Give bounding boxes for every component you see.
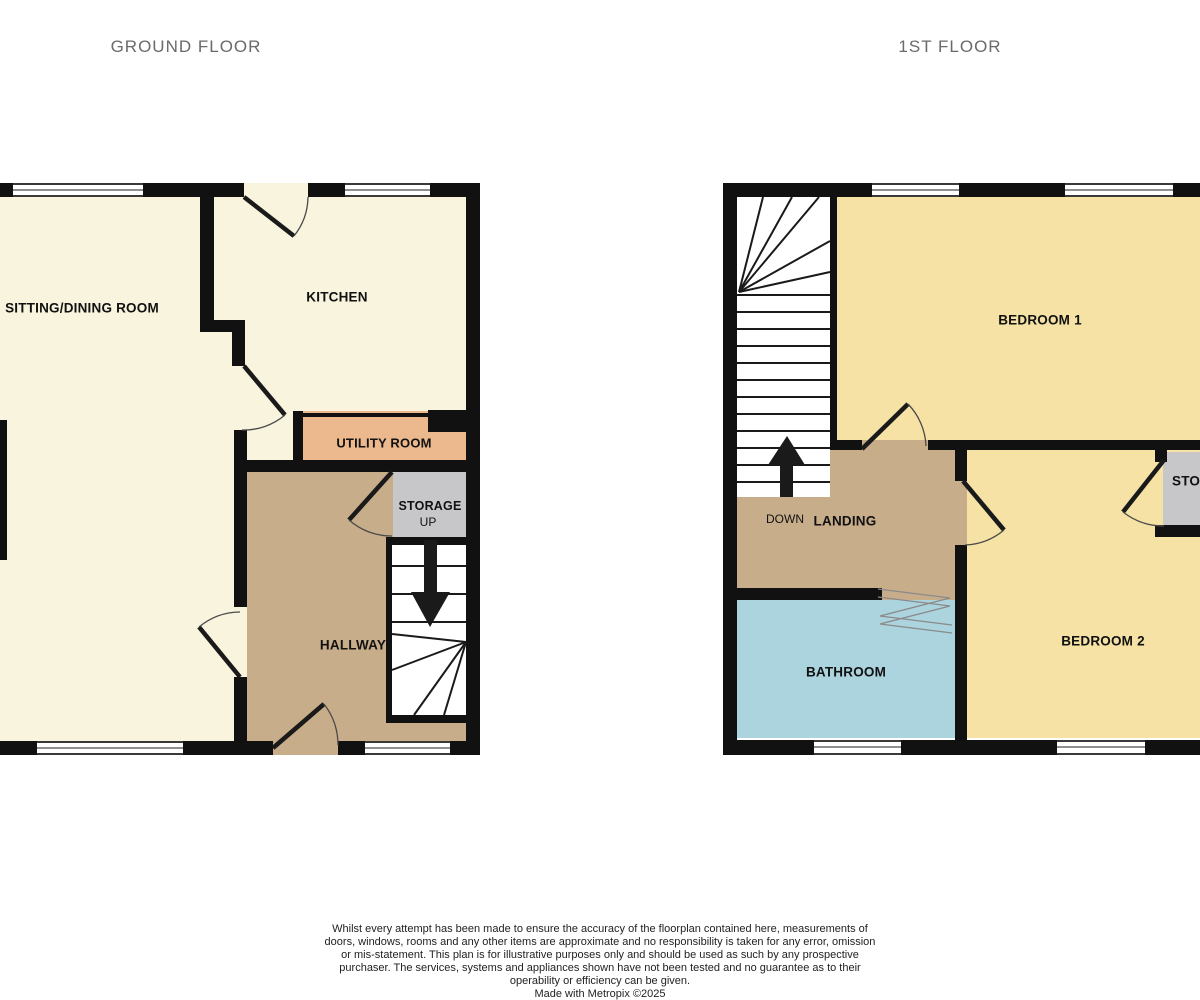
wall [0, 420, 7, 560]
wall [234, 460, 466, 472]
window [37, 741, 183, 755]
staircase-first [737, 197, 830, 497]
wall [232, 330, 245, 366]
wall [466, 183, 480, 755]
stairs-down-label: DOWN [766, 512, 804, 526]
room-label-bedroom1: BEDROOM 1 [998, 313, 1082, 328]
ground-floor-title: GROUND FLOOR [111, 37, 262, 57]
wall [837, 440, 862, 450]
room-label-bathroom: BATHROOM [806, 665, 886, 680]
wall [386, 545, 392, 723]
wall [428, 410, 466, 432]
room-label-kitchen: KITCHEN [306, 290, 367, 305]
credit-text: Made with Metropix ©2025 [322, 988, 878, 1000]
room-storage-first [1163, 452, 1200, 525]
window [872, 183, 959, 197]
wall [386, 715, 466, 723]
wall [234, 430, 247, 607]
door-opening [244, 183, 308, 197]
wall [955, 448, 967, 481]
room-label-storage-ground: STORAGE [399, 499, 462, 513]
room-label-utility: UTILITY ROOM [336, 436, 431, 451]
room-label-hallway: HALLWAY [320, 638, 386, 653]
window [365, 741, 450, 755]
footer: Whilst every attempt has been made to en… [322, 923, 878, 1000]
room-label-bedroom2: BEDROOM 2 [1061, 634, 1145, 649]
door-opening [862, 440, 928, 450]
first-floor-title: 1ST FLOOR [898, 37, 1001, 57]
room-label-sitting-dining: SITTING/DINING ROOM [5, 301, 159, 316]
wall [303, 413, 430, 417]
window [13, 183, 143, 197]
room-label-storage-first: STORAGE [1172, 474, 1200, 489]
front-door-opening [273, 741, 338, 755]
wall [830, 197, 837, 450]
window [1057, 740, 1145, 755]
stairs-up-label: UP [420, 515, 437, 529]
wall [386, 537, 466, 545]
wall [1155, 448, 1167, 462]
window [345, 183, 430, 197]
room-label-landing: LANDING [814, 514, 877, 529]
wall [1155, 525, 1200, 537]
wall [955, 545, 967, 740]
wall [234, 677, 247, 741]
window [1065, 183, 1173, 197]
wall [723, 588, 882, 600]
wall [200, 197, 214, 320]
floorplan-page: GROUND FLOOR 1ST FLOOR [0, 0, 1200, 1000]
wall [723, 183, 737, 755]
window [814, 740, 901, 755]
disclaimer-text: Whilst every attempt has been made to en… [322, 923, 878, 988]
staircase-ground [392, 545, 466, 715]
door-opening [955, 481, 967, 545]
wall [293, 411, 303, 460]
